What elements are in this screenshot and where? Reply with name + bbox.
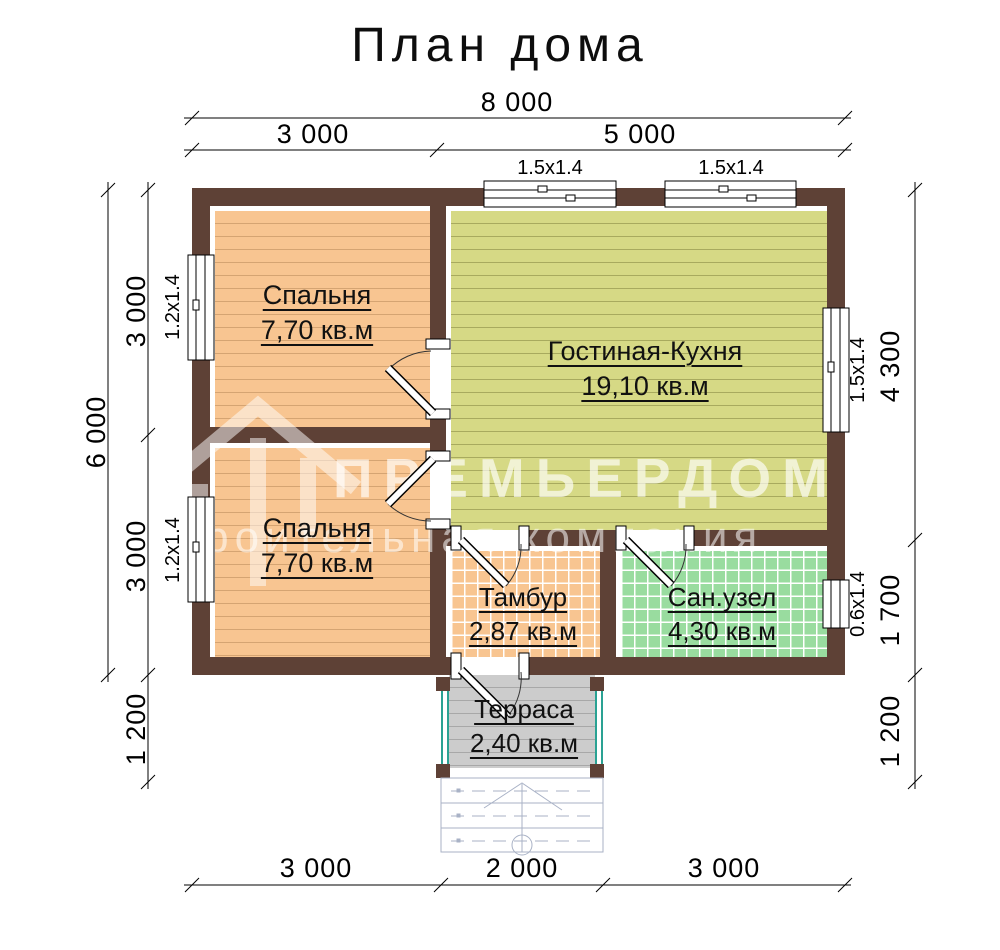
dim-bottom-seg3: 3 000 xyxy=(662,853,786,883)
room-name: Спальня xyxy=(187,280,447,310)
dim-top-right: 5 000 xyxy=(578,119,702,149)
room-area: 7,70 кв.м xyxy=(187,548,447,578)
plan-details-layer xyxy=(0,0,1000,950)
room-name: Спальня xyxy=(187,513,447,543)
floor-plan-page: ПРЕМЬЕРДОМ строительная компания xyxy=(0,0,1000,950)
dim-right-seg2: 1 700 xyxy=(875,548,905,672)
page-title: План дома xyxy=(0,18,1000,73)
label-bedroom-top: Спальня 7,70 кв.м xyxy=(187,280,447,345)
dim-left-seg3: 1 200 xyxy=(121,667,151,791)
dim-left-total: 6 000 xyxy=(81,370,111,494)
dim-bottom-seg2: 2 000 xyxy=(460,853,584,883)
label-bedroom-bottom: Спальня 7,70 кв.м xyxy=(187,513,447,578)
dim-bottom-seg1: 3 000 xyxy=(254,853,378,883)
room-area: 4,30 кв.м xyxy=(592,616,852,646)
dim-left-seg2: 3 000 xyxy=(121,494,151,618)
winlab-left-2: 1.2x1.4 xyxy=(161,495,185,605)
dim-top-total: 8 000 xyxy=(455,87,579,117)
room-name: Терраса xyxy=(394,694,654,724)
door-tambour xyxy=(451,526,529,586)
label-terrace: Терраса 2,40 кв.м xyxy=(394,694,654,758)
room-area: 7,70 кв.м xyxy=(187,315,447,345)
label-living: Гостиная-Кухня 19,10 кв.м xyxy=(515,336,775,401)
door-bathroom xyxy=(616,526,694,586)
room-area: 2,40 кв.м xyxy=(394,728,654,758)
dim-right-seg1: 4 300 xyxy=(875,304,905,428)
room-name: Сан.узел xyxy=(592,582,852,612)
window-top-2 xyxy=(665,181,796,207)
window-top-1 xyxy=(484,181,616,207)
winlab-top-1: 1.5x1.4 xyxy=(495,156,605,180)
dim-top-left: 3 000 xyxy=(251,119,375,149)
dim-right-seg3: 1 200 xyxy=(875,669,905,793)
room-name: Гостиная-Кухня xyxy=(515,336,775,366)
winlab-left-1: 1.2x1.4 xyxy=(161,252,185,362)
door-bedroom-top xyxy=(388,339,450,419)
stairs xyxy=(441,778,603,855)
room-area: 19,10 кв.м xyxy=(515,371,775,401)
dim-left-seg1: 3 000 xyxy=(121,249,151,373)
winlab-top-2: 1.5x1.4 xyxy=(676,156,786,180)
dimension-lines xyxy=(101,111,922,892)
label-bathroom: Сан.узел 4,30 кв.м xyxy=(592,582,852,646)
winlab-right-1: 1.5x1.4 xyxy=(846,315,870,425)
